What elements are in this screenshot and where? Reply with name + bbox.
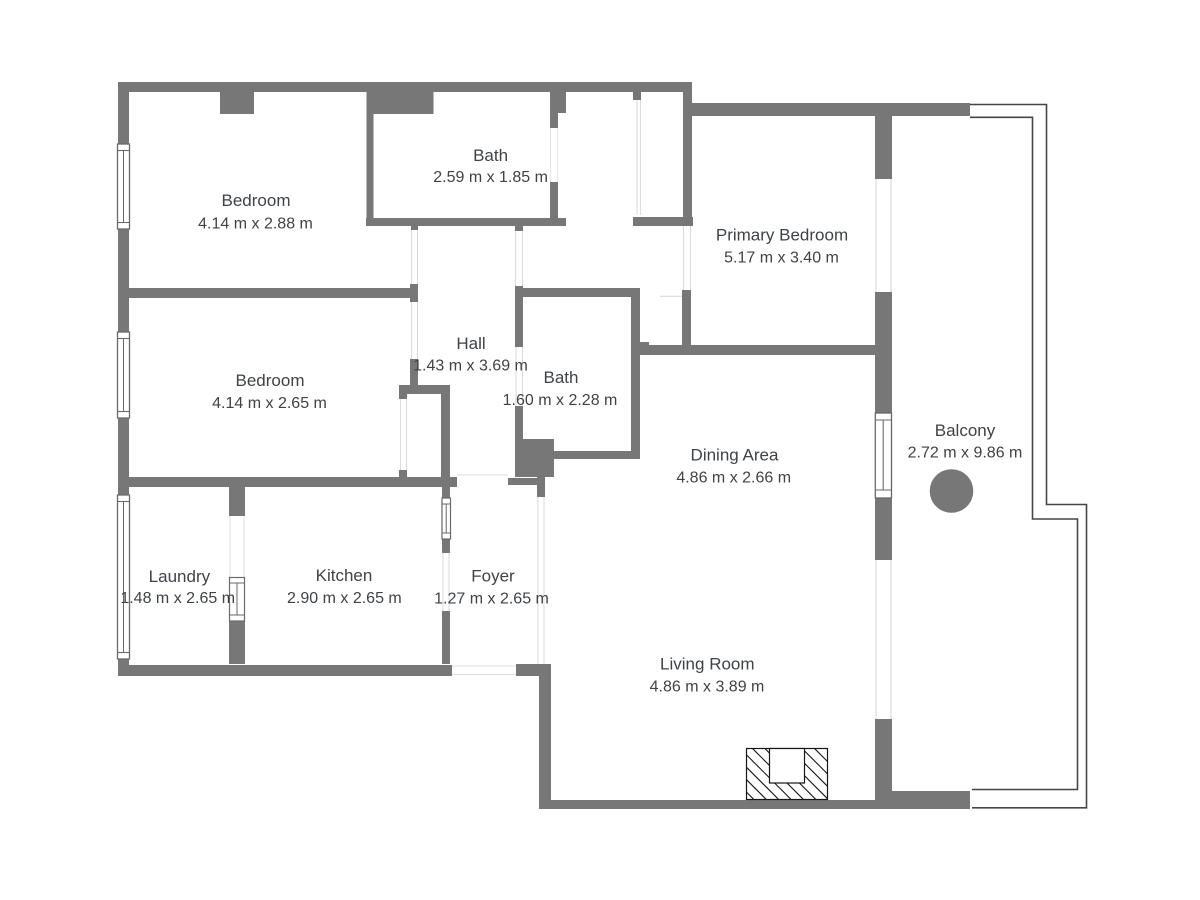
svg-text:Kitchen: Kitchen <box>316 566 373 585</box>
svg-text:Bath: Bath <box>544 368 579 387</box>
svg-text:Bath: Bath <box>473 146 508 165</box>
svg-text:Primary Bedroom: Primary Bedroom <box>716 226 848 245</box>
svg-text:2.72 m x 9.86 m: 2.72 m x 9.86 m <box>908 445 1023 462</box>
svg-text:2.90 m x 2.65 m: 2.90 m x 2.65 m <box>287 590 402 607</box>
svg-text:4.86 m x 2.66 m: 4.86 m x 2.66 m <box>676 470 791 487</box>
svg-text:Balcony: Balcony <box>935 421 996 440</box>
svg-text:Hall: Hall <box>456 334 485 353</box>
svg-text:Laundry: Laundry <box>149 567 211 586</box>
svg-text:1.60 m x 2.28 m: 1.60 m x 2.28 m <box>503 392 618 409</box>
svg-text:Foyer: Foyer <box>471 567 515 586</box>
svg-text:4.14 m x 2.88 m: 4.14 m x 2.88 m <box>198 216 313 233</box>
svg-text:Bedroom: Bedroom <box>236 371 305 390</box>
svg-text:Living Room: Living Room <box>660 655 755 674</box>
svg-text:Dining Area: Dining Area <box>691 446 779 465</box>
svg-text:1.27 m x 2.65 m: 1.27 m x 2.65 m <box>434 591 549 608</box>
svg-text:4.86 m x 3.89 m: 4.86 m x 3.89 m <box>650 679 765 696</box>
svg-text:1.43 m x 3.69 m: 1.43 m x 3.69 m <box>413 358 528 375</box>
svg-text:5.17 m x 3.40 m: 5.17 m x 3.40 m <box>724 250 839 267</box>
svg-text:Bedroom: Bedroom <box>222 191 291 210</box>
svg-text:1.48 m x 2.65 m: 1.48 m x 2.65 m <box>120 590 235 607</box>
svg-text:2.59 m x 1.85 m: 2.59 m x 1.85 m <box>433 169 548 186</box>
svg-text:4.14 m x 2.65 m: 4.14 m x 2.65 m <box>212 395 327 412</box>
